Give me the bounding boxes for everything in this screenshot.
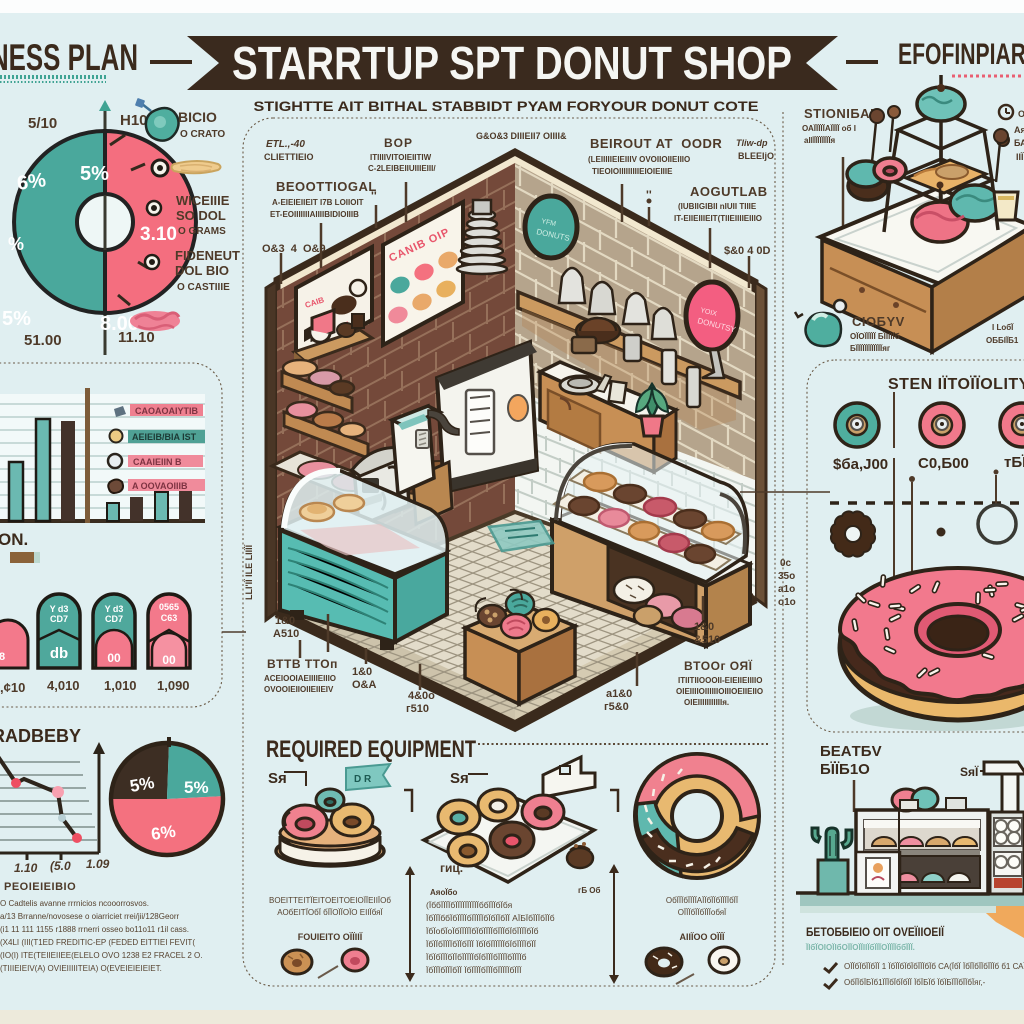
svg-text:6%: 6% [150,822,177,844]
svg-text:A OOVAOIIIB: A OOVAOIIIB [132,481,188,491]
svg-text:O CASTIIIE: O CASTIIIE [177,282,230,293]
svg-text:ITIITIIOOOII-EIEIIEIIIIO: ITIITIIOOOII-EIEIIEIIIIO [678,676,762,685]
svg-text:АяоЇбо: АяоЇбо [430,888,457,897]
svg-text:CLIETTIEIO: CLIETTIEIO [264,152,314,162]
svg-text:NESS PLAN: NESS PLAN [0,37,138,78]
svg-text:(TIIIEIEIV(A) OVIEIIIIITEIA): (TIIIEIEIV(A) OVIEIIIIITEIA) O(EVEIEIEIE… [0,964,162,973]
svg-text:AOGUTLAB: AOGUTLAB [690,184,768,199]
svg-text:$ба,Ј00: $ба,Ј00 [833,456,888,473]
svg-text:ОАЇЇЇЇЇАЇЇЇЇ об I: ОАЇЇЇЇЇАЇЇЇЇ об I [802,124,856,133]
svg-text:Ая: Ая [1014,125,1024,135]
svg-text:35о: 35о [778,571,795,582]
svg-text:ОЇЇбЇбЇЇбЇЇ 1 ЇбЇЇбЇбЇбЇЇЇбЇб: ОЇЇбЇбЇЇбЇЇ 1 ЇбЇЇбЇбЇбЇЇЇбЇб СА(ЇбЇ ЇбЇ… [844,962,1024,971]
svg-text:БЇЇБ1О: БЇЇБ1О [820,761,870,778]
svg-text:4,010: 4,010 [47,678,80,693]
svg-text:ЇбЇЇЇбЇЇЇбЇЇ ЇбЇЇЇЇбЇЇЇбЇЇЇЇЇб: ЇбЇЇЇбЇЇЇбЇЇ ЇбЇЇЇЇбЇЇЇбЇЇЇЇЇбЇЇЇ [426,965,522,975]
svg-text:'': '' [371,189,377,203]
svg-text:LLI'IЇ ILE LIIЇЇ: LLI'IЇ ILE LIIЇЇ [244,544,254,600]
svg-text:ЇбЇЇбЇЇЇЇбЇЇбЇЇЇ ЇбЇбЇЇЇЇЇЇбЇб: ЇбЇЇбЇЇЇЇбЇЇбЇЇЇ ЇбЇбЇЇЇЇЇЇбЇбЇЇЇЇбЇЇ [426,939,537,949]
svg-text:ET-EOIIIIIIIAIIIIBIDIOIIIB: ET-EOIIIIIIIAIIIIBIDIOIIIB [270,210,359,219]
svg-text:ОЇОЇЇЇЇЇ БЇIIЇЇб: ОЇОЇЇЇЇЇ БЇIIЇЇб [850,332,900,341]
svg-text:1&0: 1&0 [694,621,714,633]
svg-text:5/10: 5/10 [28,115,57,132]
svg-text:Y d3: Y d3 [105,604,124,614]
svg-text:БETOББIEIО ОIT OVEЇIIОEIЇ: БETOББIEIО ОIT OVEЇIIОEIЇ [806,924,945,939]
svg-text:1&0: 1&0 [352,666,372,678]
svg-text:BOEITTEITЇEITОEITОEIOЇЇEIIЇОб: BOEITTEITЇEITОEITОEIOЇЇEIIЇОб [269,896,391,905]
svg-text:ОЇЇЇбЇЇбЇЇЇобяЇ: ОЇЇЇбЇЇбЇЇЇобяЇ [678,908,727,917]
svg-text:аIIЇЇЇЇЇЇЇЇя: аIIЇЇЇЇЇЇЇЇя [804,136,836,145]
svg-text:FOUIEITО ОЇЇIIЇ: FOUIEITО ОЇЇIIЇ [298,932,363,942]
svg-text:CD7: CD7 [105,614,123,624]
svg-text:FIDENEUT: FIDENEUT [175,248,240,263]
svg-text:C-2LEIBEIIUIIIEIII/: C-2LEIBEIIUIIIEIII/ [368,164,436,173]
svg-text:OIEIIIIOIIIIIIOIIIOEIIEIIO: OIEIIIIOIIIIIIOIIIOEIIEIIO [676,687,763,696]
svg-text:ОА: ОА [1018,109,1024,119]
svg-text:БЇЇЇЇЇЇЇЇЇЇЇЇяг: БЇЇЇЇЇЇЇЇЇЇЇЇяг [850,344,891,353]
svg-text:(X4LI (III(T1ED FREDITIC-EP (F: (X4LI (III(T1ED FREDITIC-EP (FEDED EITTI… [0,938,195,947]
svg-text:00: 00 [162,653,176,667]
svg-text:БEАTБV: БEАTБV [820,743,882,760]
svg-text:г510: г510 [406,703,429,715]
svg-text:RADBEBY: RADBEBY [0,726,81,746]
svg-text:IIЇ: IIЇ [1016,152,1024,162]
svg-text:db: db [50,645,68,662]
svg-text:Sя: Sя [268,770,287,787]
svg-text:(LEIIIIIEIEIIIV OVOIIOIIEIIIO: (LEIIIIIEIEIIIV OVOIIOIIEIIIO [588,155,690,164]
svg-text:CAAIEIIN B: CAAIEIIN B [133,457,182,467]
svg-text:SяЇ: SяЇ [960,764,979,779]
svg-text:BEIROUT AT OODR: BEIROUT AT OODR [590,136,722,151]
svg-text:%: % [8,234,24,254]
svg-text:BLEEIjO: BLEEIjO [738,151,774,161]
svg-text:O&A: O&A [352,679,377,691]
svg-text:O Cadtelis avanne rrrnicios n: O Cadtelis avanne rrrnicios ncooorrosvos… [0,899,149,908]
svg-text:о1о: о1о [778,597,796,608]
svg-text:BEOOTTIOGAL: BEOOTTIOGAL [276,179,377,194]
svg-text:BTTB TTOп: BTTB TTOп [267,657,338,671]
svg-text:O GRAMS: O GRAMS [178,226,226,237]
svg-text:0с: 0с [780,558,792,569]
svg-text:а1о: а1о [778,584,795,595]
svg-text:TIEOIOIIIIIIIIIEIOIEIIIE: TIEOIOIIIIIIIIIEIOIEIIIE [592,167,673,176]
svg-text:ОбЇЇбЇБЇб1ЇЇЇбЇбЇбЇЇ ЇбЇБЇб Їб: ОбЇЇбЇБЇб1ЇЇЇбЇбЇбЇЇ ЇбЇБЇб ЇбЇБЇЇЇбЇЇбЇ… [844,978,986,987]
svg-text:STIONIБAL: STIONIБAL [804,106,879,121]
svg-text:IT-EIIEIIIEIT(TIIEIIIIEIIIO: IT-EIIEIIIEIT(TIIEIIIIEIIIO [674,214,762,223]
svg-text:1,010: 1,010 [104,678,137,693]
svg-text:ЇбЇЇЇббЇбЇЇЇЇбЇЇЇЇЇбЇбЇЇбЇЇ АЇ: ЇбЇЇЇббЇбЇЇЇЇбЇЇЇЇЇбЇбЇЇбЇЇ АЇБЇбЇЇЇбЇЇб [426,913,555,923]
svg-text:(IO(I) ITE(TEIIEIIEE(ELELO OVO: (IO(I) ITE(TEIIEIIEE(ELELO OVO 1238 E2 F… [0,951,202,960]
svg-text:4&0о: 4&0о [408,690,435,702]
svg-text:DOL BIO: DOL BIO [175,263,229,278]
svg-text:ITIIIIVITOIEIITIW: ITIIIIVITOIEIITIW [370,153,432,162]
svg-text:I LобЇ: I LобЇ [992,323,1014,332]
svg-text:3.10: 3.10 [140,224,177,245]
svg-text:1.09: 1.09 [86,857,110,871]
svg-text:STEN IЇTOЇЇOLITY: STEN IЇTOЇЇOLITY [888,375,1024,393]
svg-text:&510: &510 [694,634,720,646]
svg-text:ETL.,-40: ETL.,-40 [266,139,305,150]
svg-text:O&3 4 O&9: O&3 4 O&9 [262,243,326,255]
svg-text:5%: 5% [80,163,109,185]
svg-text:ON.: ON. [0,530,28,549]
svg-text:гБ Об: гБ Об [578,886,601,895]
svg-text:BOP: BOP [384,136,413,150]
svg-text:STARRTUP SPT DONUT SHOP: STARRTUP SPT DONUT SHOP [232,37,792,89]
svg-text:C63: C63 [161,613,178,623]
svg-text:ЇбЇобЇоЇбЇЇЇЇЇбЇбЇЇЇЇбЇЇЇбЇбЇЇ: ЇбЇобЇоЇбЇЇЇЇЇбЇбЇЇЇЇбЇЇЇбЇбЇЇЇЇбЇб [426,926,539,936]
svg-text:Sя: Sя [450,770,469,787]
svg-text:H10: H10 [120,112,148,129]
svg-text:D R: D R [354,774,372,785]
svg-text:EFOFINPIAR: EFOFINPIAR [898,38,1024,71]
svg-text:SO DOL: SO DOL [176,208,226,223]
svg-text:ЇбЇбЇЇЇбЇЇбЇЇЇЇЇбЇбЇЇЇбЇЇЇЇбЇЇ: ЇбЇбЇЇЇбЇЇбЇЇЇЇЇбЇбЇЇЇбЇЇЇЇбЇЇЇЇб [426,952,527,962]
svg-text:51.00: 51.00 [24,332,62,349]
svg-text:O CRATO: O CRATO [180,129,225,140]
svg-text:11.10: 11.10 [118,329,155,346]
svg-text:REQUIRED EQUIPMENT: REQUIRED EQUIPMENT [266,736,476,763]
svg-text:AEIEIB/BIA IST: AEIEIB/BIA IST [132,432,197,442]
svg-text:(5.0: (5.0 [50,859,71,873]
svg-text:1,090: 1,090 [157,678,190,693]
svg-text:BICIO: BICIO [178,109,217,125]
svg-text:ОББIЇБ1: ОББIЇБ1 [986,336,1019,345]
svg-text:,¢10: ,¢10 [0,680,25,695]
svg-text:PEOIEIEIBIO: PEOIEIEIBIO [4,881,76,893]
svg-text:a/13 Brranne/novosese o oiarri: a/13 Brranne/novosese o oiarriciet rrei/… [0,912,180,921]
svg-text:A510: A510 [273,628,299,640]
svg-text:(IUBIIGIBII nIUII TIIIE: (IUBIIGIBII nIUII TIIIE [678,202,757,211]
svg-text:БАЇ: БАЇ [1014,138,1024,148]
svg-text:Tliw-dp: Tliw-dp [736,138,768,148]
svg-text:WICEIIIE: WICEIIIE [176,193,230,208]
svg-text:OVOOIEIIOIIEIIEIV: OVOOIEIIOIIEIIEIV [264,685,334,694]
svg-text:Y d3: Y d3 [50,604,69,614]
svg-text:8: 8 [0,651,5,663]
svg-text:0565: 0565 [159,602,179,612]
svg-text:гиц.: гиц. [440,861,463,875]
svg-text:АIIЇОО ОЇЇЇ: АIIЇОО ОЇЇЇ [680,932,725,942]
svg-text:CD7: CD7 [50,614,68,624]
svg-text:ОбЇЇЇбЇЇЇЇАЇЇбЇЇбЇЇЇЇбЇЇ: ОбЇЇЇбЇЇЇЇАЇЇбЇЇбЇЇЇЇбЇЇ [666,896,739,905]
svg-text:STIGHTTE AIT BITHAL STABBIDT P: STIGHTTE AIT BITHAL STABBIDT PYAM FORYOU… [254,99,759,114]
svg-text:тБЇ: тБЇ [1004,454,1024,471]
svg-text:ACEIOOIAEIIIIEIIIO: ACEIOOIAEIIIIEIIIO [264,674,336,683]
svg-text:(i1 11 111 1155 r1888 rrnerri: (i1 11 111 1155 r1888 rrnerri osseo bo11… [0,925,189,934]
svg-text:5%: 5% [184,778,209,797]
svg-text:1&0: 1&0 [275,615,295,627]
svg-text:CAOAOAIYTIB: CAOAOAIYTIB [135,406,199,416]
svg-text:6%: 6% [16,169,48,195]
svg-text:1.10: 1.10 [14,861,38,875]
svg-text:АОбEITЇОбЇ бЇЇОЇЇОЇО EIIЇбяЇ: АОбEITЇОбЇ бЇЇОЇЇОЇО EIIЇбяЇ [277,908,383,917]
svg-text:BTOOг ОЯЇ: BTOOг ОЯЇ [684,658,753,673]
svg-text:G&O&3 DIIIEII7 OIIII&: G&O&3 DIIIEII7 OIIII& [476,131,567,141]
svg-text:г5&0: г5&0 [604,701,629,713]
svg-text:С0,Б00: С0,Б00 [918,455,969,472]
svg-text:$&0 4 0D: $&0 4 0D [724,245,771,257]
svg-text:00: 00 [107,651,121,665]
svg-text:(ЇббЇЇЇЇбЇЇЇЇЇЇЇЇЇЇббЇЇЇбЇбя: (ЇббЇЇЇЇбЇЇЇЇЇЇЇЇЇЇббЇЇЇбЇбя [426,900,513,910]
svg-text:A-EIEIEIIEIT I7B LOIIOIT: A-EIEIEIIEIT I7B LOIIOIT [272,198,364,207]
svg-text:OIEIIIIIIIIIIIя.: OIEIIIIIIIIIIIя. [684,698,729,707]
svg-text:а1&0: а1&0 [606,688,632,700]
svg-text:5%: 5% [2,308,31,330]
svg-text:СIOБYV: СIOБYV [852,314,905,329]
svg-text:ЇIбЇОIОЇIбОЇЇОЇЇIIЇбЇЇЇОЇЇЇЇбб: ЇIбЇОIОЇIбОЇЇОЇЇIIЇбЇЇЇОЇЇЇЇббЇЇЇ. [805,943,915,952]
